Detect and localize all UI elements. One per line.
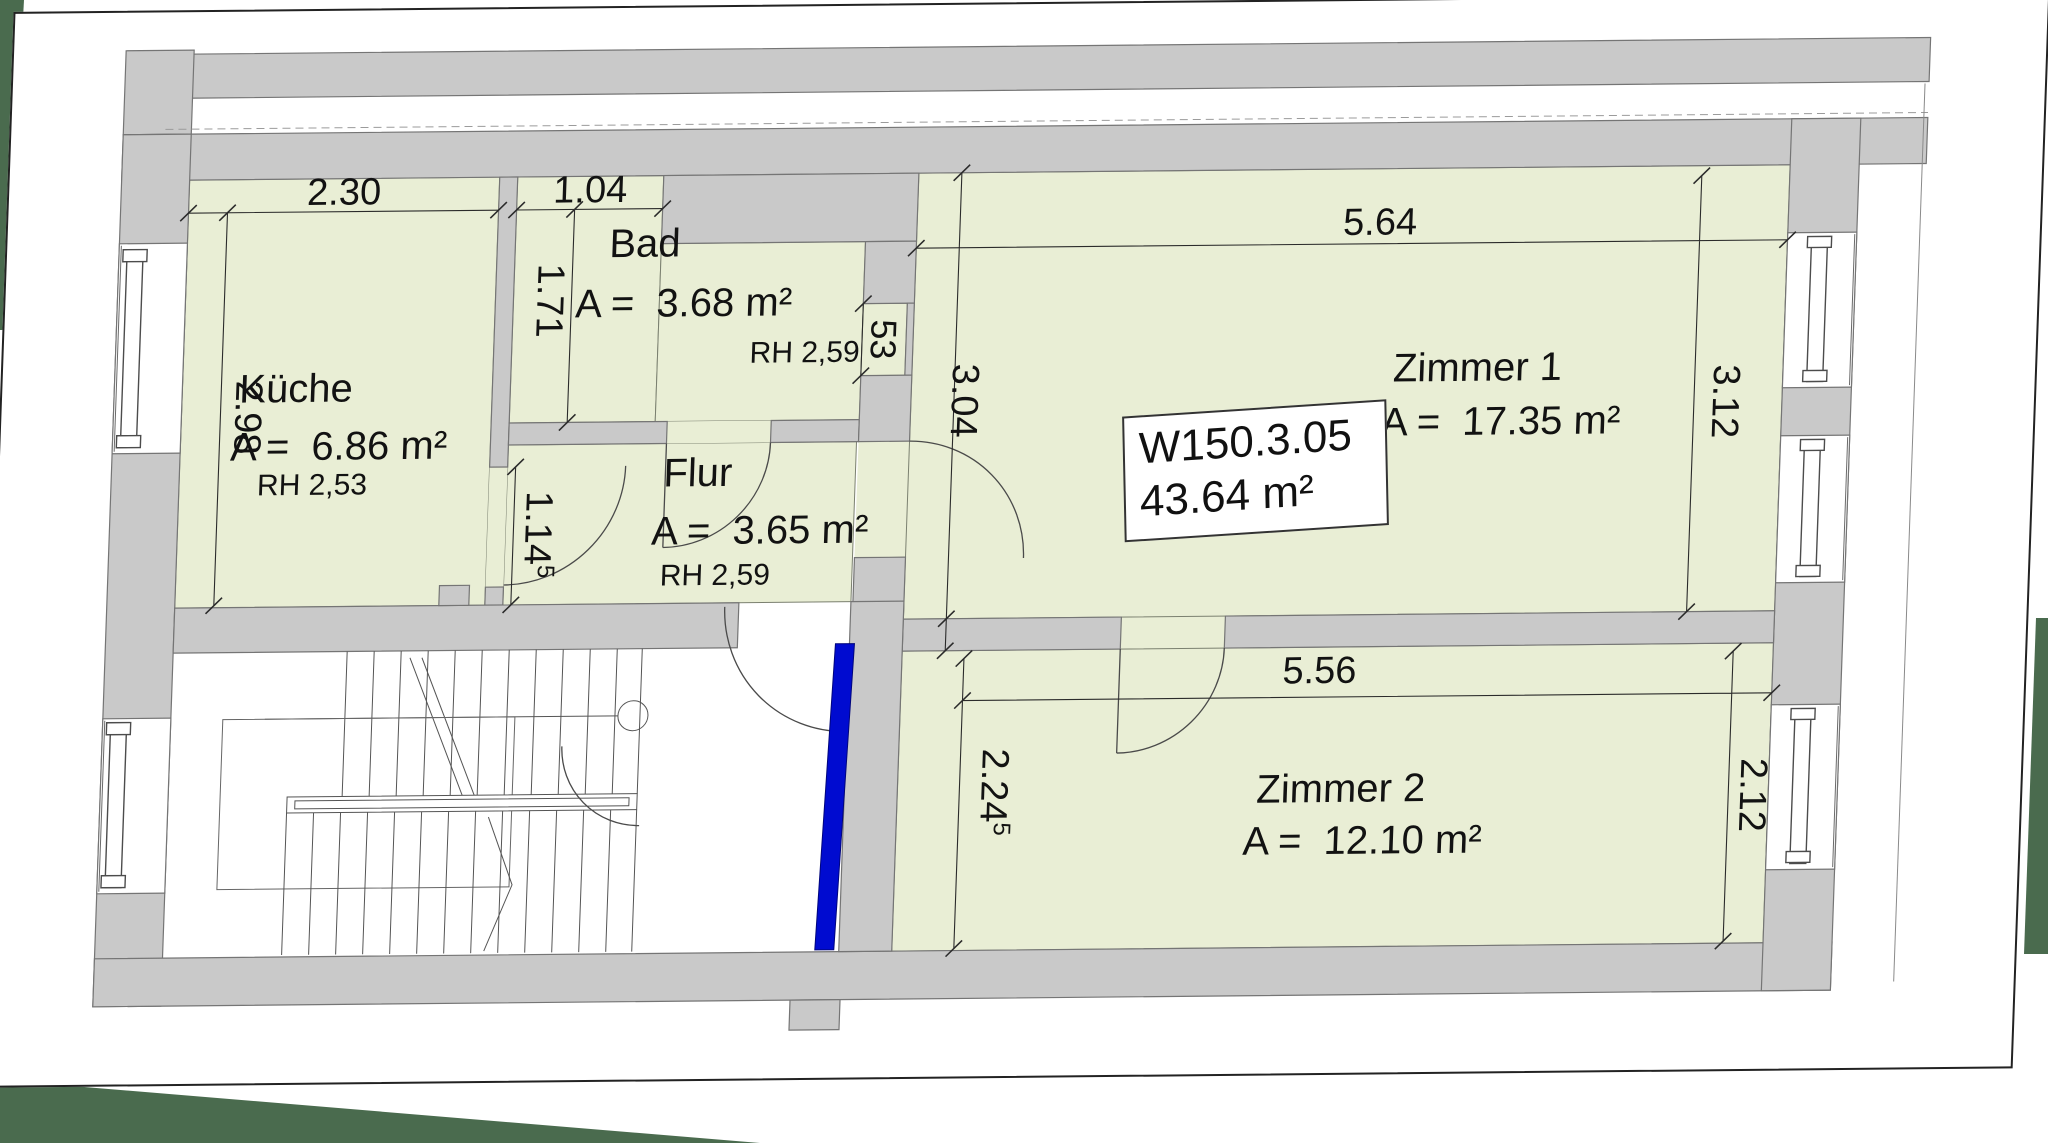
dim-label-zimmer2-depth-window: 2.12 [1732, 758, 1773, 832]
floorplan-canvas: Küche A = 6.86 m² RH 2,53 Bad A = 3.68 m… [0, 0, 2048, 1143]
door-arc-understairs [559, 746, 642, 827]
stair-rail-circle [617, 701, 648, 731]
room-floors[interactable] [162, 165, 1790, 958]
dim-label-bad-depth: 1.71 [529, 263, 570, 337]
stair-break-line [405, 657, 479, 796]
wall-stairwell-top [173, 603, 739, 653]
door-gap-bad [666, 420, 771, 443]
dim-label-zimmer1-depth-inner: 3.04 [944, 363, 985, 437]
room-area-bad: A = 3.68 m² [575, 282, 793, 324]
stair-direction-arrow [484, 817, 515, 951]
dim-label-zimmer1-width: 5.64 [1343, 203, 1418, 242]
room-area-zimmer2: A = 12.10 m² [1242, 820, 1483, 862]
dim-label-bad-width: 1.04 [553, 171, 628, 210]
neighbor-edge-line [1894, 84, 1925, 982]
room-bad-floor-b [655, 242, 865, 422]
dim-label-zimmer1-depth-window: 3.12 [1705, 364, 1746, 438]
wall-top-left-stub [123, 50, 194, 135]
room-label-zimmer2: Zimmer 2 [1256, 768, 1426, 810]
wall-zimmer1-zimmer2-b [1224, 611, 1774, 648]
stair-treads-upper [342, 649, 642, 797]
room-label-zimmer1: Zimmer 1 [1392, 347, 1562, 389]
wall-zimmer1-left-a [863, 241, 916, 303]
room-label-flur: Flur [663, 453, 733, 494]
wall-bad-bottom-right [770, 420, 859, 443]
wall-zimmer1-left-b [859, 375, 912, 441]
wall-divider-foot [789, 1000, 840, 1030]
wall-zimmer1-zimmer2-a [902, 617, 1121, 651]
stair-treads-lower [282, 810, 637, 955]
wall-kueche-lower [485, 587, 504, 605]
dim-label-flur-clear: 1.145 [517, 491, 560, 579]
dim-label-kueche-width: 2.30 [307, 173, 382, 212]
dim-label-kueche-depth: 2.98 [227, 380, 268, 454]
plan-sheet-group: Küche A = 6.86 m² RH 2,53 Bad A = 3.68 m… [0, 0, 2048, 1143]
room-rh-bad: RH 2,59 [749, 338, 860, 369]
room-area-zimmer1: A = 17.35 m² [1380, 400, 1621, 442]
apartment-tag[interactable]: W150.3.05 43.64 m² [1122, 399, 1389, 542]
wall-bad-bottom-left [508, 421, 667, 445]
dim-label-zimmer2-depth-inner: 2.245 [973, 748, 1016, 836]
dim-label-niche: 53 [864, 319, 901, 359]
wall-shaft-chunk [661, 173, 918, 243]
staircase [215, 649, 651, 956]
wall-bottom [93, 942, 1832, 1007]
room-rh-flur: RH 2,59 [659, 560, 770, 591]
wall-pilaster-tab [439, 585, 470, 605]
room-area-flur: A = 3.65 m² [651, 510, 869, 552]
dim-label-zimmer2-width: 5.56 [1282, 652, 1357, 691]
room-rh-kueche: RH 2,53 [256, 470, 367, 501]
door-gap-zimmer2 [1120, 616, 1225, 649]
wall-top-upper-band [185, 37, 1931, 98]
room-label-bad: Bad [609, 223, 682, 264]
